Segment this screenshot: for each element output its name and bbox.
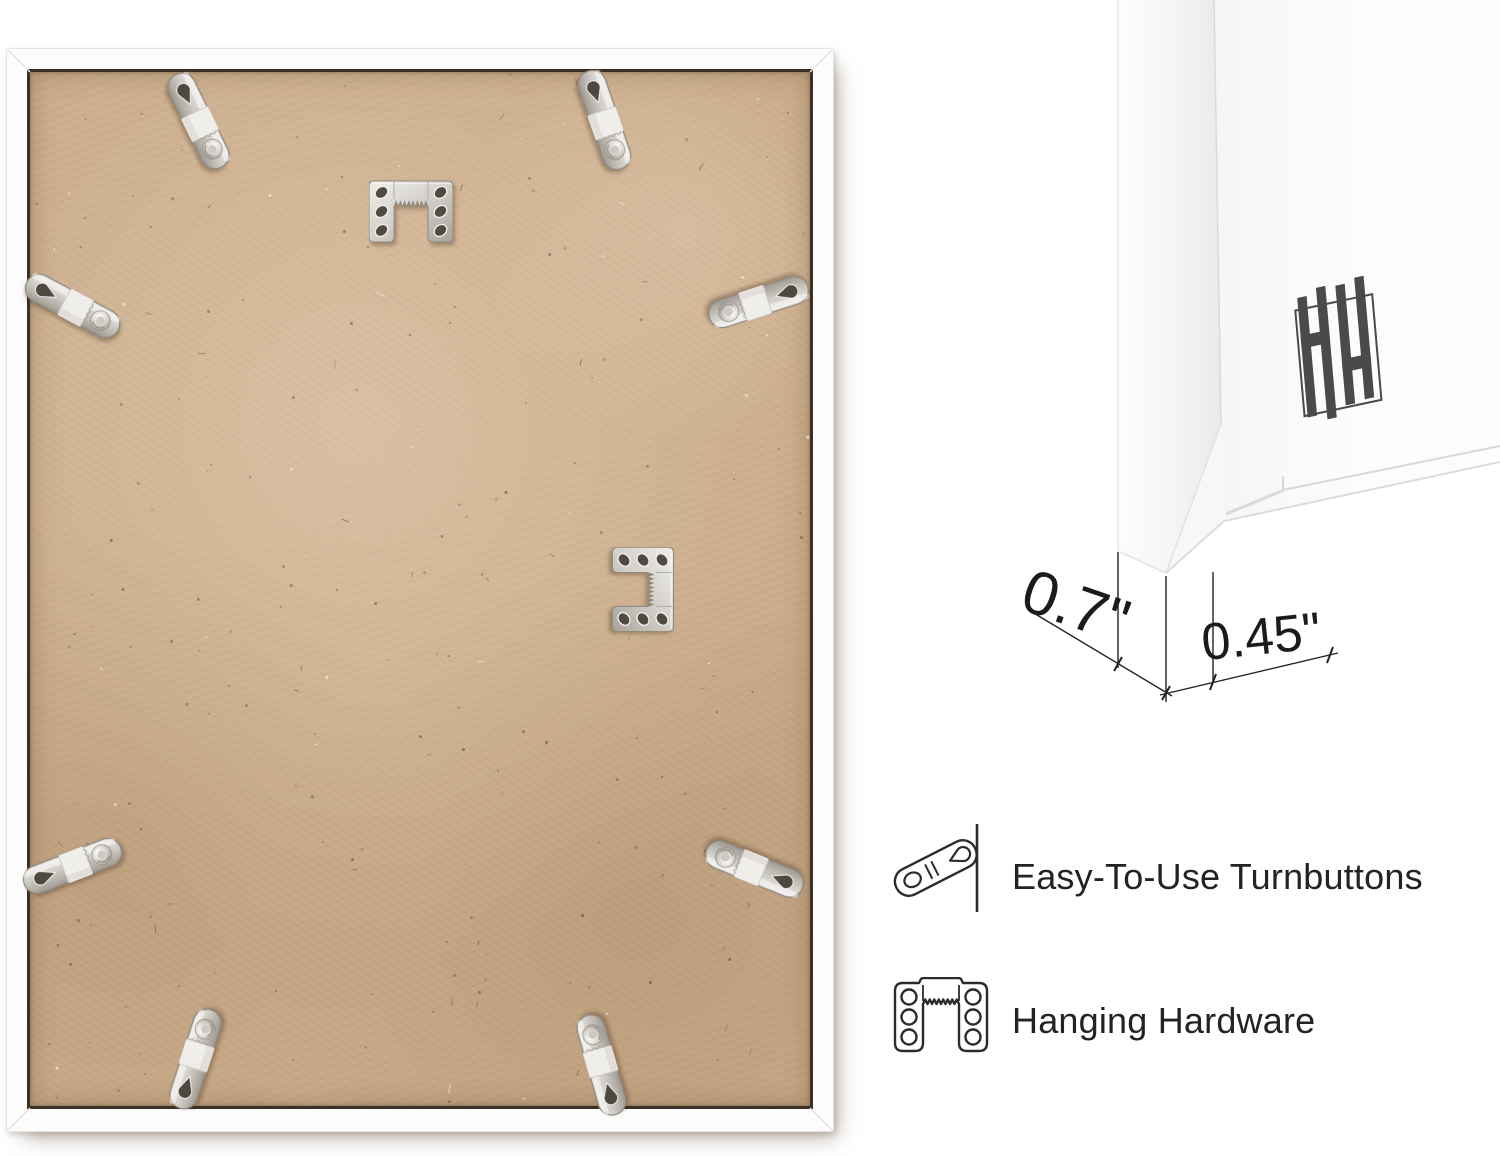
frame-front-face — [1214, 0, 1500, 521]
feature-label-turnbuttons: Easy-To-Use Turnbuttons — [1012, 856, 1423, 898]
frame-back-photo — [6, 48, 834, 1132]
frame-corner-closeup: 0.7" 0.45" — [1000, 0, 1500, 720]
product-listing-image: 0.7" 0.45" Easy-To-Use Turnbuttons Hangi… — [0, 0, 1500, 1156]
sawtooth-hanger-middle — [610, 548, 675, 632]
sawtooth-hanger-top — [369, 179, 453, 244]
hanging-hardware-icon — [891, 977, 991, 1055]
feature-label-hanging-hardware: Hanging Hardware — [1012, 1000, 1315, 1042]
dimension-label-depth: 0.7" — [1013, 556, 1138, 656]
turnbutton-icon — [877, 820, 985, 916]
dimension-label-face: 0.45" — [1199, 602, 1324, 672]
